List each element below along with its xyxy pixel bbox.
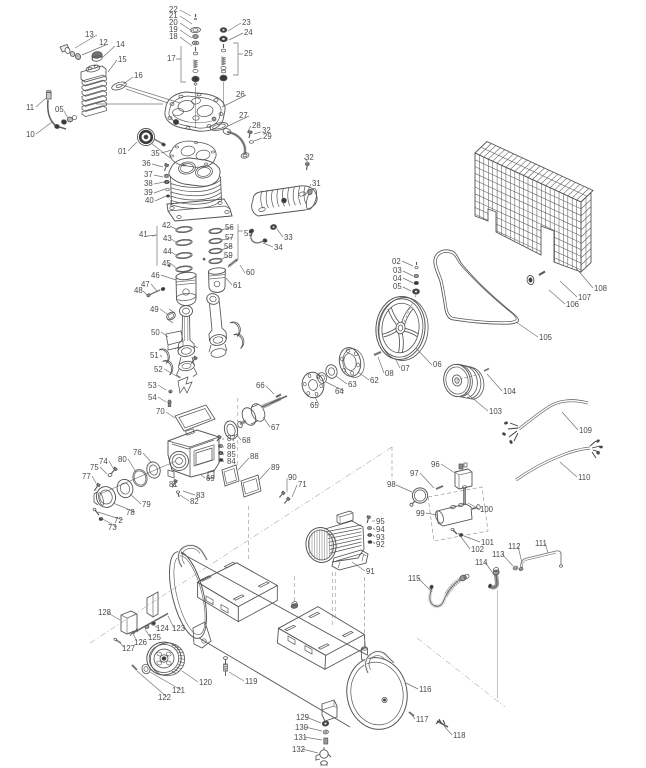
svg-text:02: 02 bbox=[392, 257, 401, 266]
svg-text:18: 18 bbox=[169, 32, 178, 41]
svg-text:14: 14 bbox=[116, 40, 125, 49]
svg-text:23: 23 bbox=[242, 18, 251, 27]
svg-text:05: 05 bbox=[55, 105, 64, 114]
svg-text:60: 60 bbox=[246, 268, 255, 277]
svg-text:48: 48 bbox=[134, 286, 143, 295]
svg-text:99: 99 bbox=[416, 509, 425, 518]
svg-text:110: 110 bbox=[578, 473, 591, 482]
svg-text:102: 102 bbox=[471, 545, 484, 554]
svg-text:15: 15 bbox=[118, 55, 127, 64]
svg-text:96: 96 bbox=[431, 460, 440, 469]
svg-text:122: 122 bbox=[158, 693, 171, 702]
svg-text:75: 75 bbox=[90, 463, 99, 472]
svg-text:37: 37 bbox=[144, 170, 153, 179]
svg-text:117: 117 bbox=[416, 715, 428, 724]
svg-text:70: 70 bbox=[156, 407, 165, 416]
svg-text:105: 105 bbox=[539, 333, 553, 342]
svg-text:42: 42 bbox=[162, 221, 171, 230]
svg-text:41: 41 bbox=[139, 230, 148, 239]
svg-text:119: 119 bbox=[245, 677, 257, 686]
svg-text:53: 53 bbox=[148, 381, 157, 390]
svg-text:74: 74 bbox=[99, 457, 108, 466]
svg-text:44: 44 bbox=[163, 247, 172, 256]
svg-text:46: 46 bbox=[151, 271, 160, 280]
svg-text:62: 62 bbox=[370, 376, 379, 385]
svg-text:54: 54 bbox=[148, 393, 157, 402]
svg-text:106: 106 bbox=[566, 300, 579, 309]
svg-text:82: 82 bbox=[190, 497, 199, 506]
svg-text:64: 64 bbox=[335, 387, 344, 396]
svg-text:29: 29 bbox=[263, 132, 272, 141]
svg-text:55: 55 bbox=[244, 229, 253, 238]
svg-text:98: 98 bbox=[387, 480, 396, 489]
svg-text:01: 01 bbox=[118, 147, 127, 156]
svg-text:120: 120 bbox=[199, 678, 213, 687]
svg-text:121: 121 bbox=[172, 686, 185, 695]
svg-text:34: 34 bbox=[274, 243, 283, 252]
svg-text:78: 78 bbox=[126, 508, 135, 517]
svg-text:43: 43 bbox=[163, 234, 172, 243]
svg-text:92: 92 bbox=[376, 540, 385, 549]
svg-text:68: 68 bbox=[242, 436, 251, 445]
svg-text:103: 103 bbox=[489, 407, 502, 416]
svg-text:100: 100 bbox=[480, 505, 494, 514]
svg-text:08: 08 bbox=[385, 369, 394, 378]
svg-text:05: 05 bbox=[393, 282, 402, 291]
svg-text:49: 49 bbox=[150, 305, 159, 314]
svg-text:31: 31 bbox=[312, 179, 321, 188]
svg-text:69: 69 bbox=[206, 474, 215, 483]
svg-text:06: 06 bbox=[433, 360, 442, 369]
svg-text:36: 36 bbox=[142, 159, 151, 168]
svg-text:33: 33 bbox=[284, 233, 293, 242]
svg-text:91: 91 bbox=[366, 567, 375, 576]
svg-text:127: 127 bbox=[122, 644, 135, 653]
svg-text:97: 97 bbox=[410, 469, 419, 478]
svg-text:104: 104 bbox=[503, 387, 517, 396]
svg-text:11: 11 bbox=[26, 103, 34, 112]
svg-text:108: 108 bbox=[594, 284, 607, 293]
svg-text:63: 63 bbox=[348, 380, 357, 389]
svg-text:40: 40 bbox=[145, 196, 154, 205]
svg-text:71: 71 bbox=[298, 480, 307, 489]
svg-text:25: 25 bbox=[244, 49, 253, 58]
svg-text:38: 38 bbox=[144, 179, 153, 188]
svg-text:124: 124 bbox=[156, 624, 170, 633]
svg-text:89: 89 bbox=[271, 463, 280, 472]
svg-text:10: 10 bbox=[26, 130, 35, 139]
svg-text:109: 109 bbox=[579, 426, 592, 435]
svg-text:88: 88 bbox=[250, 452, 259, 461]
svg-text:118: 118 bbox=[453, 731, 465, 740]
svg-text:50: 50 bbox=[151, 328, 160, 337]
svg-text:84: 84 bbox=[227, 457, 236, 466]
svg-text:115: 115 bbox=[408, 574, 421, 583]
svg-text:114: 114 bbox=[475, 558, 488, 567]
svg-text:35: 35 bbox=[151, 149, 160, 158]
svg-text:128: 128 bbox=[98, 608, 111, 617]
svg-text:80: 80 bbox=[118, 455, 127, 464]
svg-text:76: 76 bbox=[133, 448, 142, 457]
svg-text:77: 77 bbox=[82, 472, 91, 481]
svg-text:116: 116 bbox=[419, 685, 431, 694]
svg-text:125: 125 bbox=[148, 633, 162, 642]
svg-text:07: 07 bbox=[401, 364, 410, 373]
svg-text:66: 66 bbox=[256, 381, 265, 390]
svg-text:17: 17 bbox=[167, 54, 176, 63]
svg-text:90: 90 bbox=[288, 473, 297, 482]
svg-text:16: 16 bbox=[134, 71, 143, 80]
svg-text:24: 24 bbox=[244, 28, 253, 37]
svg-text:61: 61 bbox=[233, 281, 242, 290]
svg-text:107: 107 bbox=[578, 293, 591, 302]
svg-text:79: 79 bbox=[142, 500, 151, 509]
svg-text:28: 28 bbox=[252, 121, 261, 130]
svg-text:52: 52 bbox=[154, 365, 163, 374]
svg-text:67: 67 bbox=[271, 423, 280, 432]
svg-text:51: 51 bbox=[150, 351, 159, 360]
svg-text:123: 123 bbox=[172, 624, 185, 633]
